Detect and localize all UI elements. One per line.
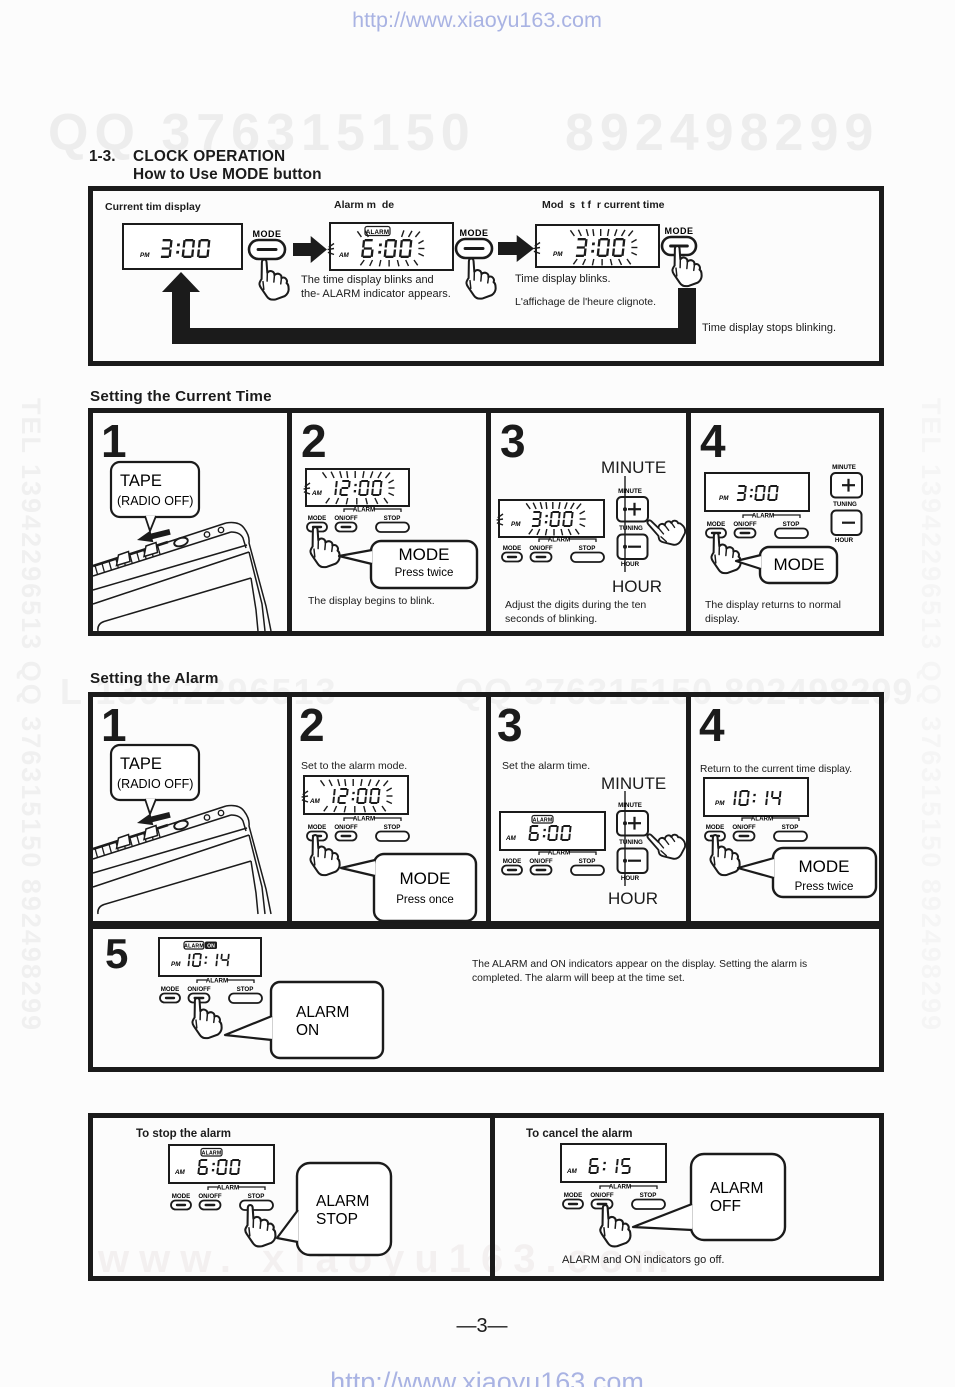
svg-text:ON: ON	[207, 943, 215, 949]
svg-text:TUNING: TUNING	[619, 525, 643, 532]
svg-text:the- ALARM indicator appears.: the- ALARM indicator appears.	[301, 288, 451, 300]
svg-text:3: 3	[497, 699, 523, 751]
svg-text:MODE: MODE	[774, 555, 825, 574]
svg-text:MODE: MODE	[253, 229, 282, 239]
svg-text:MODE: MODE	[503, 858, 522, 865]
svg-text:AM: AM	[311, 490, 323, 497]
svg-text:STOP: STOP	[237, 986, 254, 993]
svg-text:The ALARM and ON indicators ap: The ALARM and ON indicators appear on th…	[472, 959, 807, 970]
svg-text:ALARM: ALARM	[184, 943, 204, 949]
svg-text:ON/OFF: ON/OFF	[590, 1192, 614, 1199]
svg-text:MODE: MODE	[308, 515, 327, 522]
svg-text:HOUR: HOUR	[621, 875, 640, 882]
svg-text:ALARM: ALARM	[316, 1193, 369, 1210]
svg-text:Press twice: Press twice	[395, 567, 454, 579]
svg-text:892498299: 892498299	[565, 104, 879, 162]
svg-text:STOP: STOP	[579, 858, 596, 865]
svg-text:display.: display.	[705, 613, 740, 625]
svg-text:HOUR: HOUR	[621, 561, 640, 568]
svg-text:To cancel the alarm: To cancel the alarm	[526, 1128, 633, 1140]
svg-text:Press twice: Press twice	[795, 881, 854, 893]
svg-text:1: 1	[101, 699, 127, 751]
svg-text:MINUTE: MINUTE	[832, 464, 856, 471]
svg-text:3: 3	[500, 415, 526, 467]
svg-text:PM: PM	[553, 251, 563, 258]
svg-text:QQ 376315150 892498299: QQ 376315150 892498299	[455, 671, 913, 712]
svg-text:seconds of blinking.: seconds of blinking.	[505, 613, 597, 625]
svg-text:—3—: —3—	[456, 1315, 507, 1337]
svg-text:MINUTE: MINUTE	[618, 488, 642, 495]
svg-text:(RADIO OFF): (RADIO OFF)	[117, 494, 193, 508]
svg-text:Set to the alarm mode.: Set to the alarm mode.	[301, 760, 407, 772]
svg-text:ON/OFF: ON/OFF	[198, 1193, 222, 1200]
svg-text:MODE: MODE	[799, 857, 850, 876]
svg-text:MODE: MODE	[308, 824, 327, 831]
svg-text:MODE: MODE	[161, 986, 180, 993]
svg-text:TEL 13942296513 QQ 376315150 8: TEL 13942296513 QQ 376315150 892498299	[916, 398, 946, 1032]
svg-text:ALARM: ALARM	[609, 1184, 631, 1191]
svg-text:(RADIO OFF): (RADIO OFF)	[117, 777, 193, 791]
svg-text:Time display blinks.: Time display blinks.	[515, 273, 611, 285]
svg-text:ON/OFF: ON/OFF	[529, 858, 553, 865]
svg-text:STOP: STOP	[782, 824, 799, 831]
svg-text:STOP: STOP	[640, 1192, 657, 1199]
svg-text:HOUR: HOUR	[608, 889, 658, 908]
svg-text:The time display blinks and: The time display blinks and	[301, 274, 434, 286]
svg-text:TAPE: TAPE	[120, 472, 162, 490]
svg-text:PM: PM	[511, 521, 521, 528]
svg-text:PM: PM	[140, 252, 150, 259]
svg-text:http://www.xiaoyu163.com: http://www.xiaoyu163.com	[352, 8, 602, 32]
svg-text:Time display stops blinking.: Time display stops blinking.	[702, 322, 836, 334]
svg-text:ON/OFF: ON/OFF	[529, 545, 553, 552]
svg-text:MODE: MODE	[564, 1192, 583, 1199]
svg-text:AM: AM	[338, 252, 350, 259]
svg-text:The display begins to blink.: The display begins to blink.	[308, 595, 435, 607]
svg-text:Press once: Press once	[396, 894, 454, 906]
svg-text:PM: PM	[715, 800, 725, 807]
svg-text:MODE: MODE	[172, 1193, 191, 1200]
svg-text:MODE: MODE	[706, 824, 725, 831]
svg-text:PM: PM	[171, 961, 181, 968]
svg-text:Alarm m de: Alarm m de	[334, 199, 394, 211]
svg-text:ALARM and ON indicators go off: ALARM and ON indicators go off.	[562, 1254, 724, 1266]
svg-text:Current tim display: Current tim display	[105, 201, 201, 213]
svg-text:ALARM: ALARM	[752, 513, 774, 520]
svg-text:OFF: OFF	[710, 1198, 741, 1215]
svg-text:MINUTE: MINUTE	[601, 774, 666, 793]
svg-text:ALARM: ALARM	[353, 507, 375, 514]
svg-text:STOP: STOP	[579, 545, 596, 552]
svg-text:STOP: STOP	[384, 824, 401, 831]
svg-text:Return to the current time dis: Return to the current time display.	[700, 764, 852, 775]
svg-text:How to Use MODE button: How to Use MODE button	[133, 166, 322, 183]
svg-text:http://www.xiaoyu163.com: http://www.xiaoyu163.com	[330, 1367, 644, 1387]
svg-text:ALARM: ALARM	[296, 1004, 349, 1021]
svg-text:MINUTE: MINUTE	[601, 458, 666, 477]
svg-text:ON: ON	[296, 1022, 319, 1039]
svg-text:ON/OFF: ON/OFF	[733, 521, 757, 528]
svg-text:Mod s t f r current time: Mod s t f r current time	[542, 199, 665, 211]
svg-text:ON/OFF: ON/OFF	[187, 986, 211, 993]
svg-text:The display returns to normal: The display returns to normal	[705, 599, 841, 611]
svg-text:ALARM: ALARM	[548, 537, 570, 544]
svg-text:1-3.: 1-3.	[89, 148, 116, 165]
svg-text:MODE: MODE	[400, 869, 451, 888]
svg-text:Adjust the digits during the t: Adjust the digits during the ten	[505, 599, 646, 611]
svg-text:ON/OFF: ON/OFF	[732, 824, 756, 831]
svg-text:AM: AM	[309, 798, 321, 805]
svg-text:ALARM: ALARM	[751, 816, 773, 823]
svg-text:STOP: STOP	[783, 521, 800, 528]
svg-text:ON/OFF: ON/OFF	[334, 515, 358, 522]
svg-text:MODE: MODE	[399, 545, 450, 564]
svg-text:TUNING: TUNING	[833, 501, 857, 508]
svg-text:ALARM: ALARM	[217, 1185, 239, 1192]
svg-text:AM: AM	[174, 1169, 186, 1176]
svg-text:L'affichage de l'heure clignot: L'affichage de l'heure clignote.	[515, 296, 656, 308]
svg-text:Set the alarm time.: Set the alarm time.	[502, 760, 590, 772]
svg-text:STOP: STOP	[248, 1193, 265, 1200]
svg-text:MINUTE: MINUTE	[618, 802, 642, 809]
svg-text:CLOCK OPERATION: CLOCK OPERATION	[133, 148, 285, 165]
svg-text:ON/OFF: ON/OFF	[334, 824, 358, 831]
svg-text:STOP: STOP	[316, 1211, 358, 1228]
svg-text:To stop the alarm: To stop the alarm	[136, 1128, 231, 1140]
svg-text:ALARM: ALARM	[353, 816, 375, 823]
svg-text:ALARM: ALARM	[202, 1150, 222, 1156]
svg-text:ALARM: ALARM	[533, 817, 553, 823]
svg-text:ALARM: ALARM	[710, 1180, 763, 1197]
svg-text:TAPE: TAPE	[120, 755, 162, 773]
svg-text:4: 4	[700, 415, 726, 467]
svg-text:MODE: MODE	[460, 228, 489, 238]
svg-text:HOUR: HOUR	[612, 577, 662, 596]
svg-text:ALARM: ALARM	[366, 229, 389, 236]
svg-text:MODE: MODE	[707, 521, 726, 528]
svg-text:Setting the Alarm: Setting the Alarm	[90, 670, 219, 687]
svg-text:HOUR: HOUR	[835, 537, 854, 544]
svg-text:AM: AM	[566, 1168, 578, 1175]
svg-text:TEL 13942296513 QQ 376315150 8: TEL 13942296513 QQ 376315150 892498299	[16, 398, 46, 1032]
svg-text:Setting the Current Time: Setting the Current Time	[90, 388, 272, 405]
svg-text:AM: AM	[505, 835, 517, 842]
svg-text:ALARM: ALARM	[548, 850, 570, 857]
svg-text:MODE: MODE	[503, 545, 522, 552]
svg-text:MODE: MODE	[665, 226, 694, 236]
svg-text:2: 2	[301, 415, 327, 467]
svg-text:completed. The alarm will beep: completed. The alarm will beep at the ti…	[472, 973, 685, 984]
svg-text:STOP: STOP	[384, 515, 401, 522]
svg-text:4: 4	[699, 699, 725, 751]
svg-text:PM: PM	[719, 495, 729, 502]
svg-text:5: 5	[105, 930, 128, 977]
svg-text:1: 1	[101, 415, 127, 467]
svg-text:2: 2	[299, 699, 325, 751]
svg-text:ALARM: ALARM	[206, 978, 228, 985]
svg-text:TUNING: TUNING	[619, 839, 643, 846]
